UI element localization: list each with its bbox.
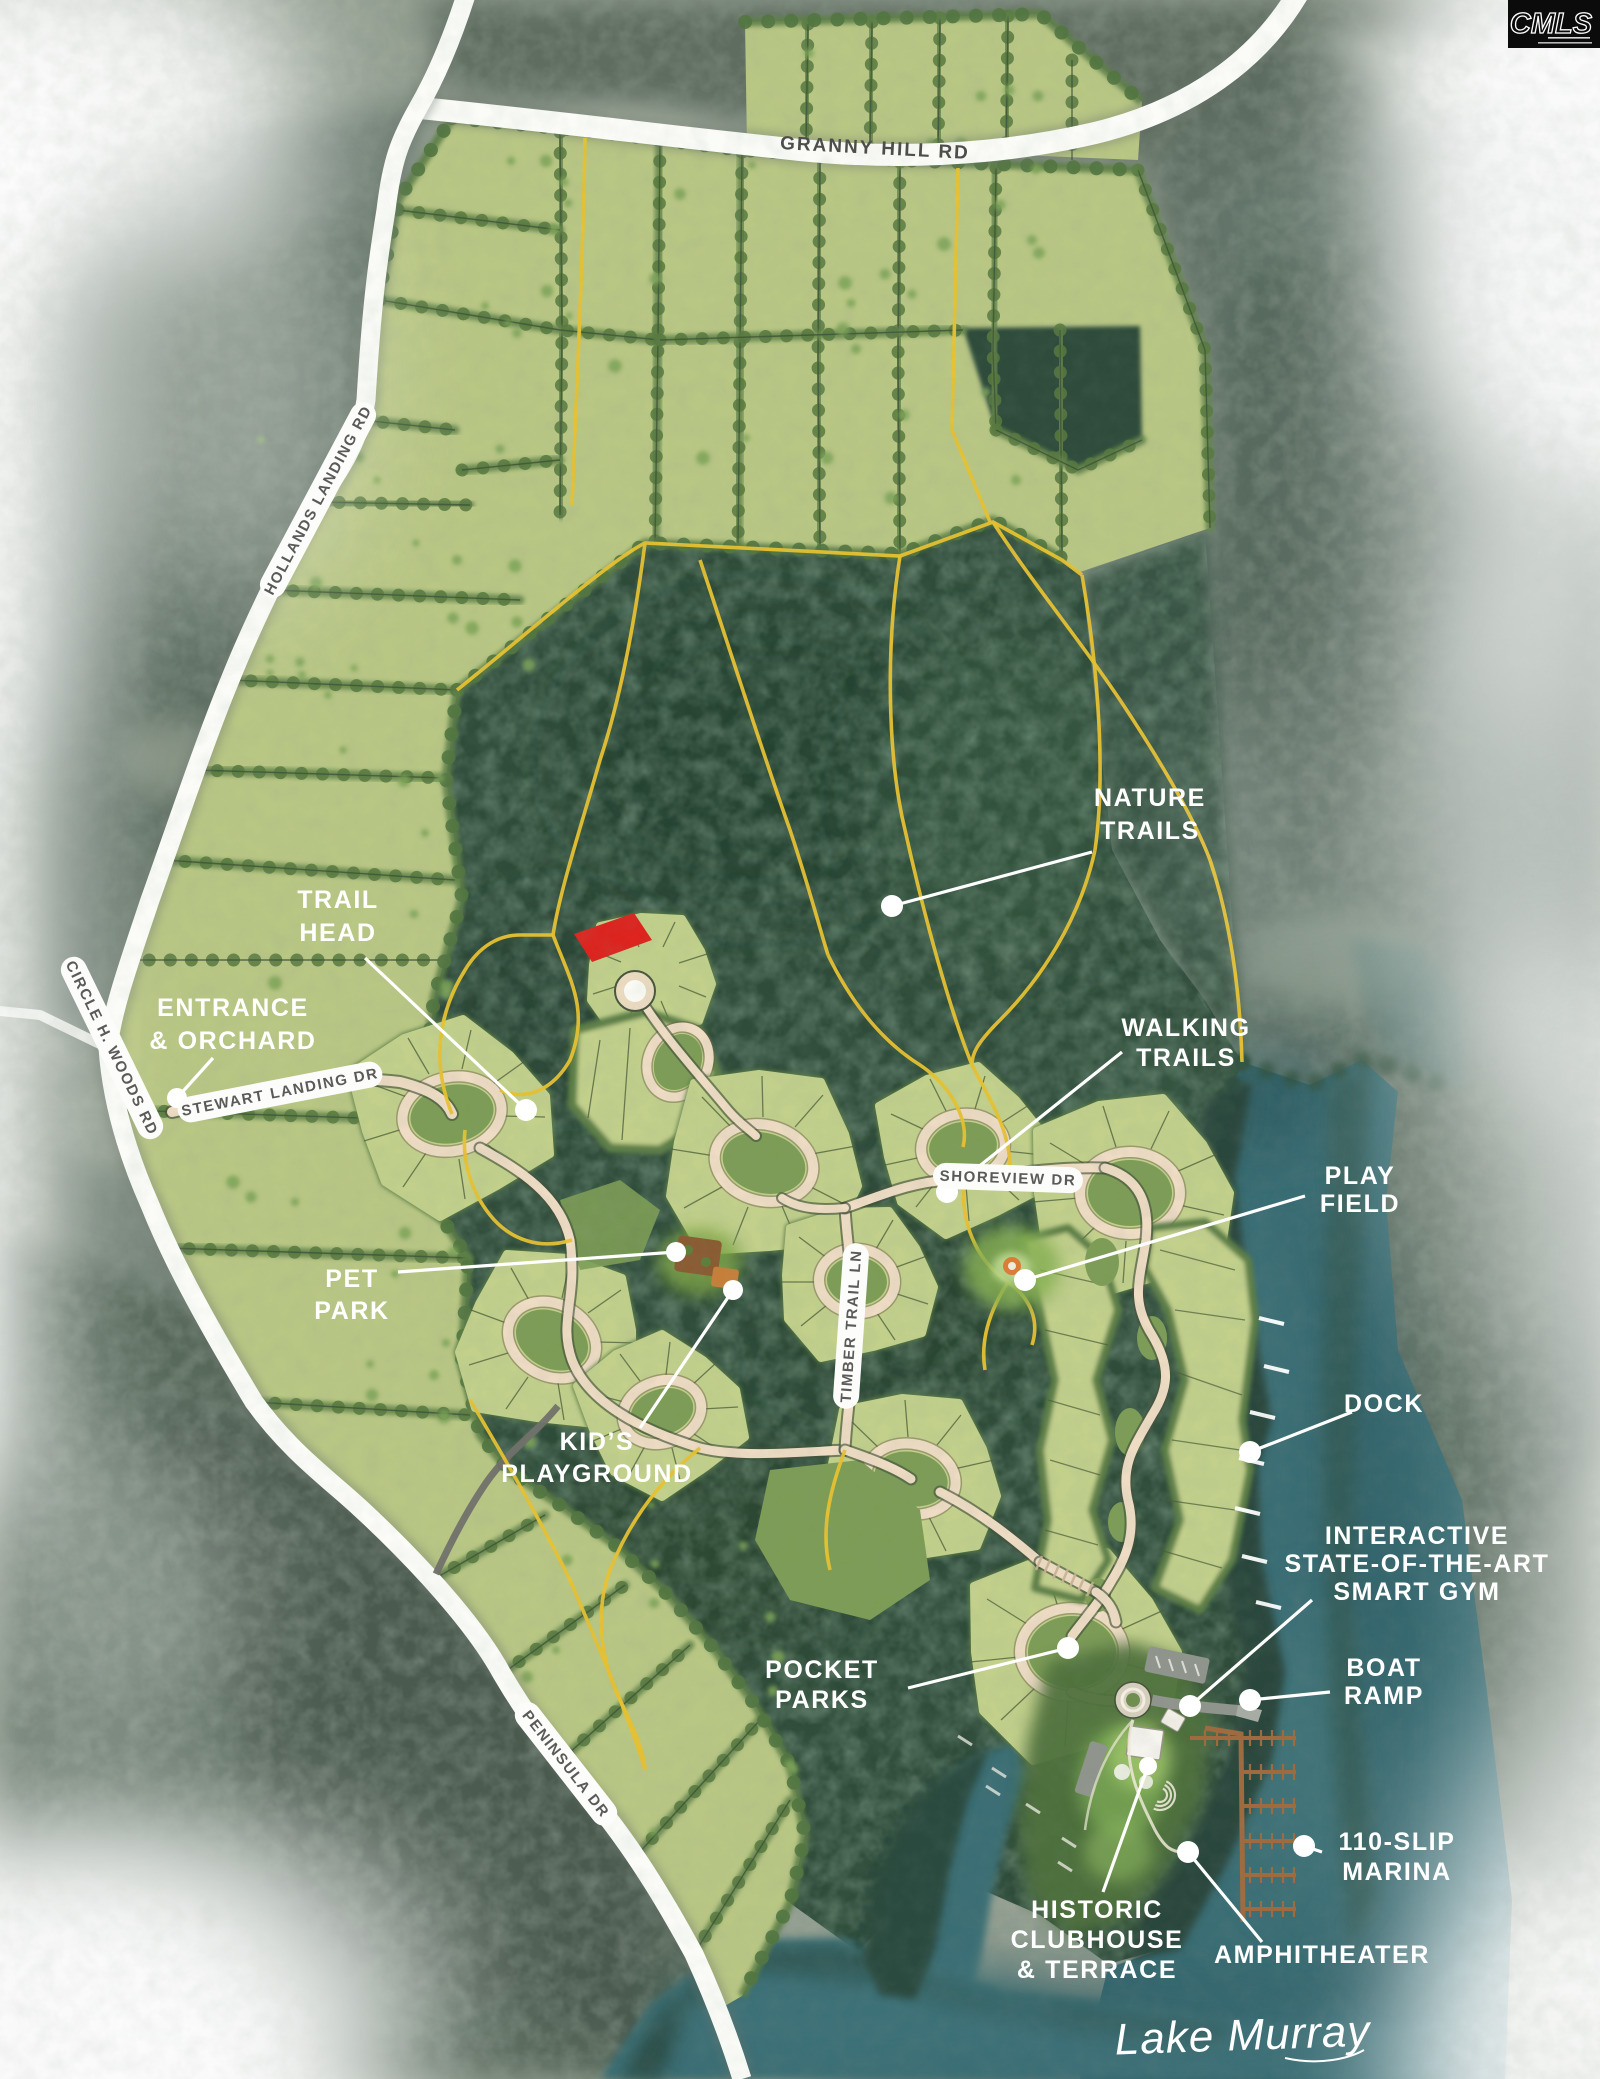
svg-text:110-SLIP: 110-SLIP bbox=[1338, 1828, 1455, 1856]
svg-text:PARKS: PARKS bbox=[775, 1686, 869, 1714]
svg-text:INTERACTIVE: INTERACTIVE bbox=[1325, 1522, 1509, 1550]
svg-text:TRAILS: TRAILS bbox=[1100, 817, 1200, 845]
svg-text:HISTORIC: HISTORIC bbox=[1031, 1896, 1163, 1924]
svg-text:PLAY: PLAY bbox=[1325, 1162, 1396, 1190]
svg-text:CLUBHOUSE: CLUBHOUSE bbox=[1011, 1926, 1184, 1954]
svg-text:AMPHITHEATER: AMPHITHEATER bbox=[1214, 1941, 1430, 1969]
svg-text:HEAD: HEAD bbox=[299, 919, 376, 947]
svg-text:SMART GYM: SMART GYM bbox=[1333, 1578, 1500, 1606]
svg-text:NATURE: NATURE bbox=[1094, 784, 1206, 812]
svg-text:DOCK: DOCK bbox=[1344, 1390, 1424, 1418]
svg-text:ENTRANCE: ENTRANCE bbox=[157, 994, 309, 1022]
svg-text:PLAYGROUND: PLAYGROUND bbox=[501, 1460, 693, 1488]
svg-text:PET: PET bbox=[325, 1265, 378, 1293]
svg-text:& ORCHARD: & ORCHARD bbox=[149, 1027, 316, 1055]
svg-text:POCKET: POCKET bbox=[765, 1656, 879, 1684]
svg-text:CMLS: CMLS bbox=[1510, 8, 1593, 40]
svg-text:FIELD: FIELD bbox=[1320, 1190, 1400, 1218]
svg-text:BOAT: BOAT bbox=[1346, 1654, 1421, 1682]
svg-text:STATE-OF-THE-ART: STATE-OF-THE-ART bbox=[1285, 1550, 1550, 1578]
svg-text:RAMP: RAMP bbox=[1344, 1682, 1424, 1710]
svg-text:& TERRACE: & TERRACE bbox=[1017, 1956, 1177, 1984]
svg-text:Lake Murray: Lake Murray bbox=[1114, 2006, 1373, 2064]
svg-text:PARK: PARK bbox=[314, 1297, 389, 1325]
svg-text:MARINA: MARINA bbox=[1342, 1858, 1452, 1886]
svg-text:WALKING: WALKING bbox=[1121, 1014, 1250, 1042]
svg-text:TRAILS: TRAILS bbox=[1136, 1044, 1236, 1072]
svg-text:TRAIL: TRAIL bbox=[297, 886, 379, 914]
svg-text:KID’S: KID’S bbox=[560, 1428, 635, 1456]
